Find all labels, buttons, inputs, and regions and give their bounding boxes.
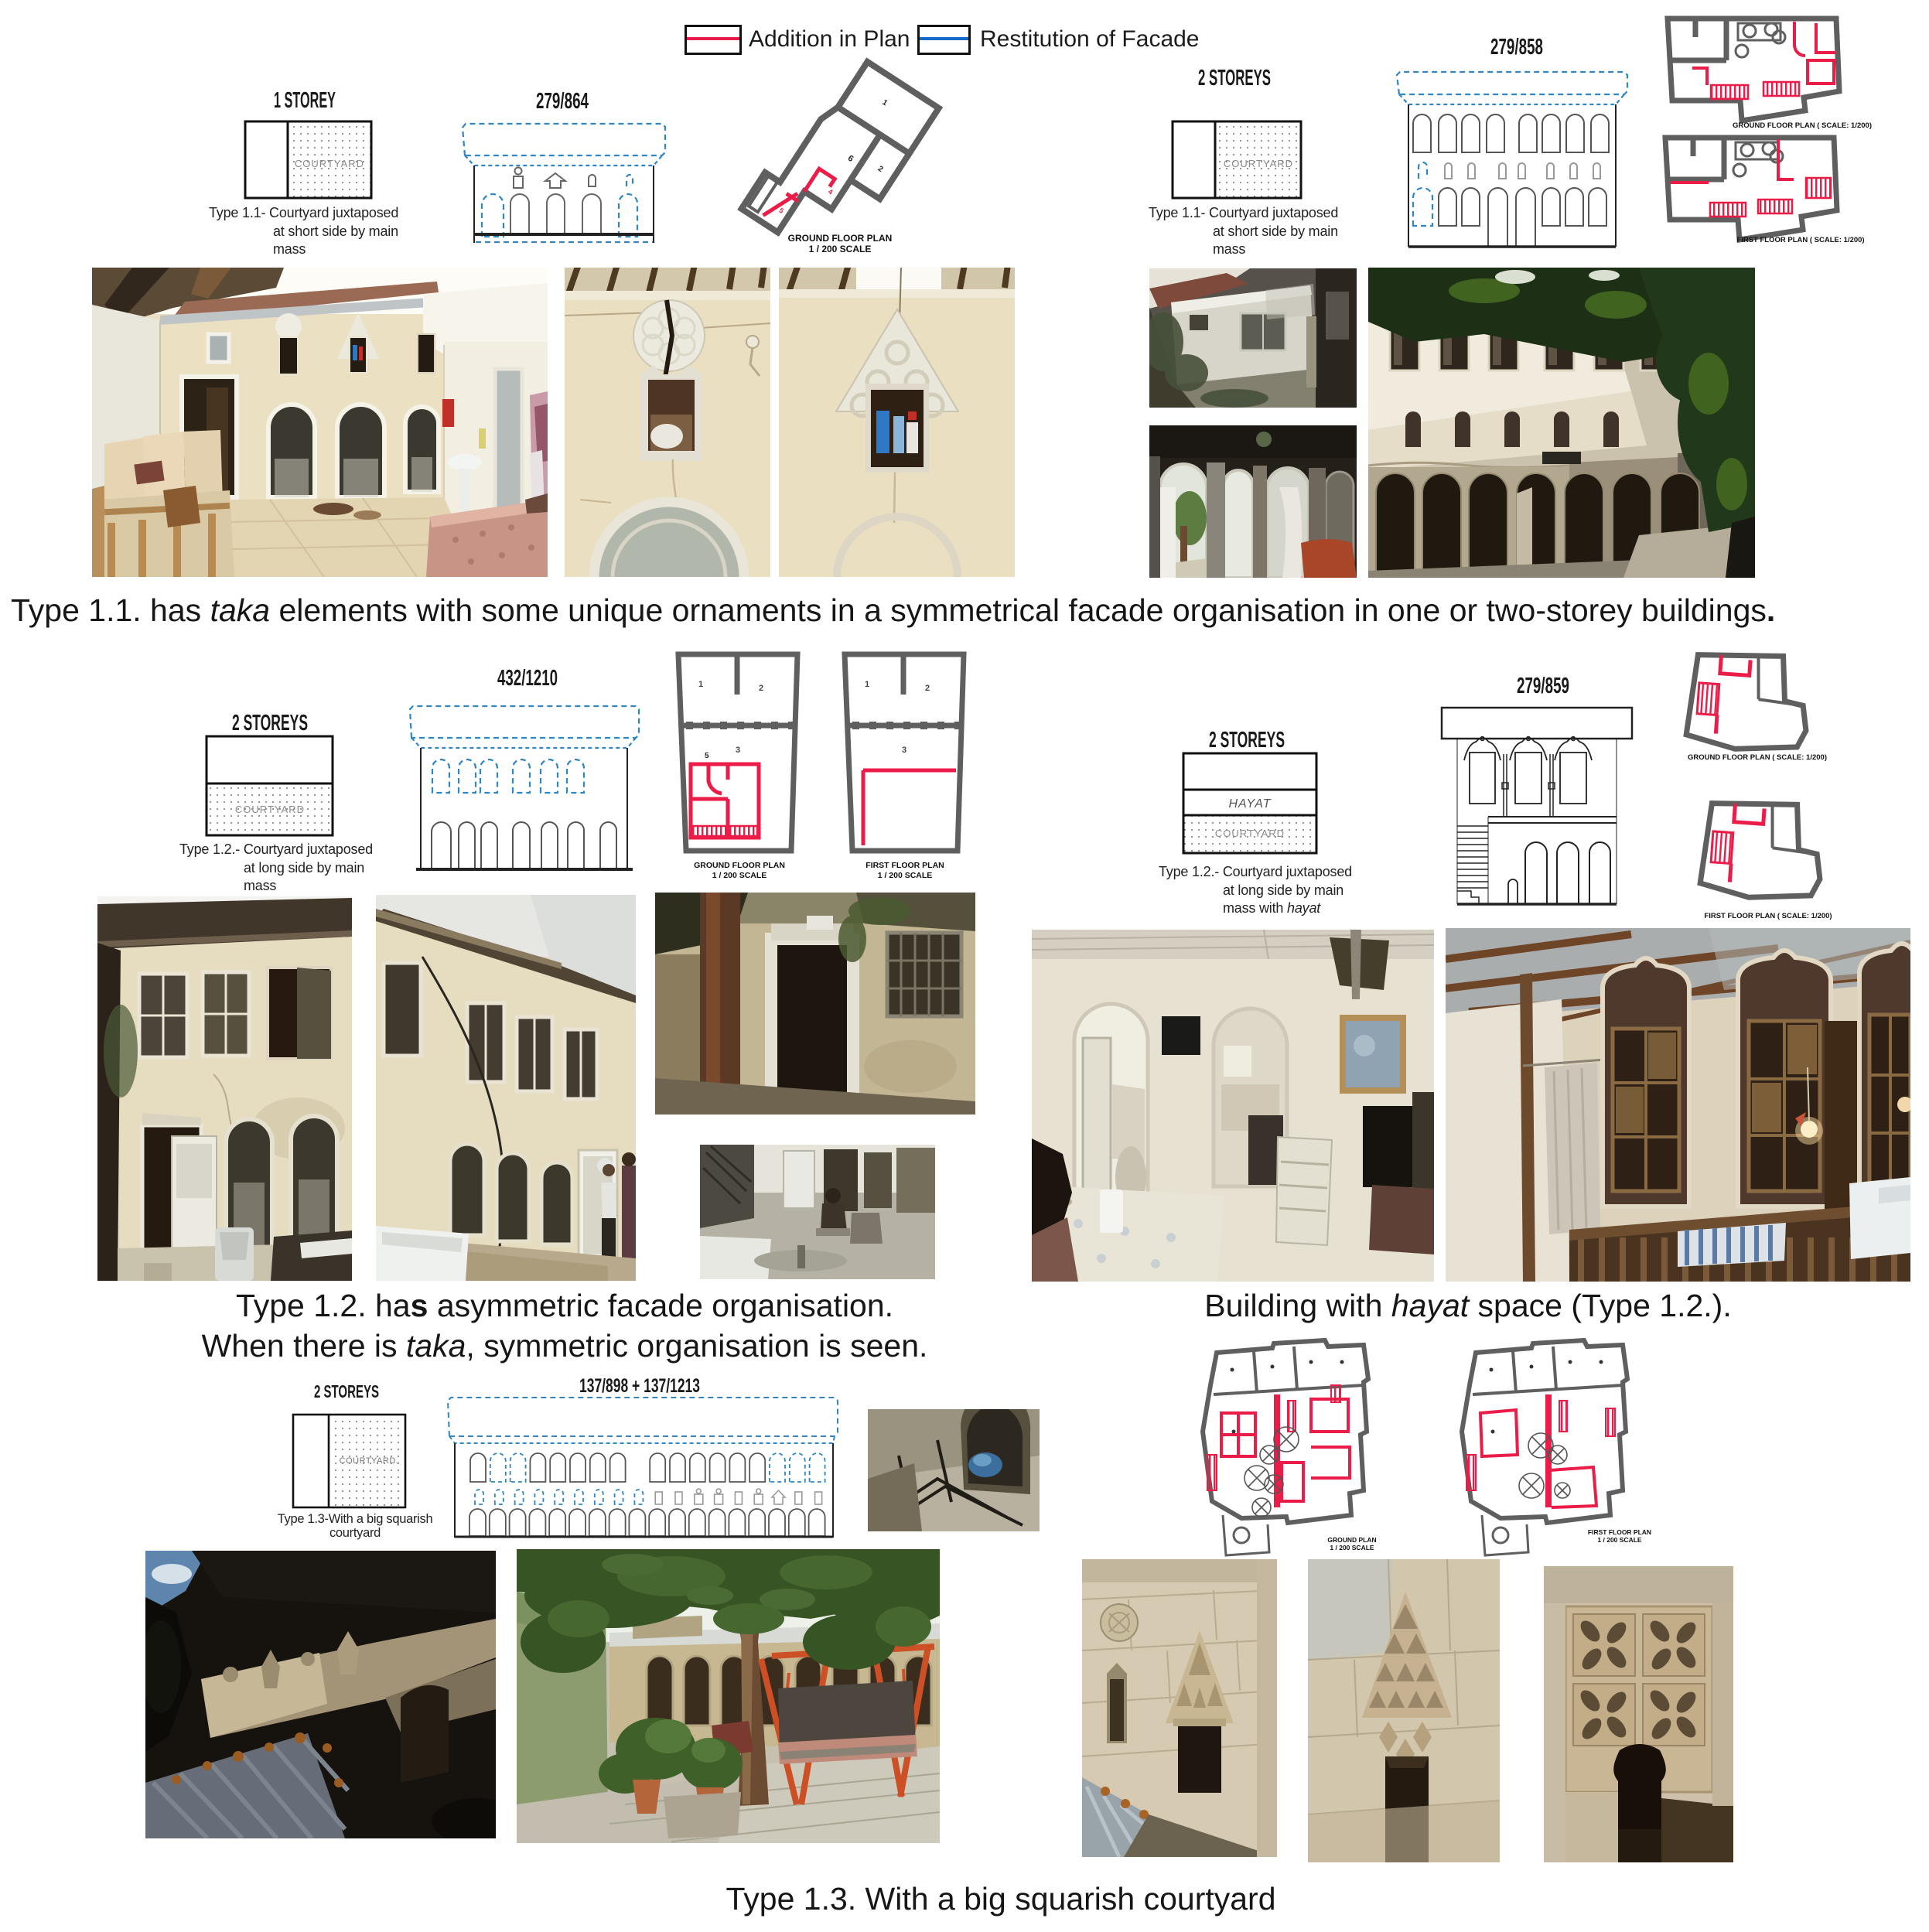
svg-text:4: 4 — [827, 187, 835, 196]
svg-text:1 / 200 SCALE: 1 / 200 SCALE — [1330, 1544, 1374, 1551]
svg-text:2: 2 — [925, 684, 930, 693]
svg-text:COURTYARD: COURTYARD — [1215, 828, 1285, 839]
svg-text:1: 1 — [698, 680, 703, 689]
svg-text:FIRST FLOOR PLAN ( SCALE: 1/20: FIRST FLOOR PLAN ( SCALE: 1/200) — [1704, 912, 1832, 920]
svg-text:2 STOREYS: 2 STOREYS — [314, 1381, 379, 1401]
svg-text:COURTYARD: COURTYARD — [235, 804, 305, 815]
svg-text:HAYAT: HAYAT — [1228, 797, 1271, 811]
svg-text:2 STOREYS: 2 STOREYS — [1209, 728, 1285, 753]
svg-text:GROUND FLOOR PLAN: GROUND FLOOR PLAN — [694, 861, 785, 870]
svg-text:2: 2 — [876, 165, 885, 174]
svg-text:1: 1 — [880, 98, 889, 108]
svg-text:1: 1 — [865, 680, 869, 689]
svg-text:2 STOREYS: 2 STOREYS — [232, 711, 308, 736]
svg-text:FIRST FLOOR PLAN ( SCALE: 1/20: FIRST FLOOR PLAN ( SCALE: 1/200) — [1736, 236, 1864, 244]
svg-text:1 STOREY: 1 STOREY — [274, 88, 336, 113]
svg-text:279/859: 279/859 — [1517, 674, 1569, 698]
svg-text:137/898 + 137/1213: 137/898 + 137/1213 — [579, 1375, 700, 1397]
svg-text:GROUND FLOOR PLAN: GROUND FLOOR PLAN — [788, 233, 893, 244]
svg-text:GROUND FLOOR PLAN ( SCALE: 1/2: GROUND FLOOR PLAN ( SCALE: 1/200) — [1733, 121, 1872, 130]
svg-text:COURTYARD: COURTYARD — [295, 158, 364, 169]
svg-text:1 / 200 SCALE: 1 / 200 SCALE — [809, 244, 872, 254]
svg-text:5: 5 — [705, 752, 709, 760]
svg-text:3: 3 — [736, 746, 740, 755]
svg-text:2: 2 — [759, 684, 763, 693]
svg-text:GROUND PLAN: GROUND PLAN — [1327, 1536, 1376, 1544]
svg-text:1 / 200 SCALE: 1 / 200 SCALE — [1597, 1536, 1641, 1544]
svg-text:1 / 200 SCALE: 1 / 200 SCALE — [878, 871, 933, 880]
svg-text:6: 6 — [846, 154, 855, 164]
svg-text:279/858: 279/858 — [1490, 35, 1543, 60]
svg-text:432/1210: 432/1210 — [497, 666, 558, 691]
svg-text:2 STOREYS: 2 STOREYS — [1198, 66, 1271, 90]
svg-text:FIRST FLOOR PLAN: FIRST FLOOR PLAN — [1588, 1528, 1651, 1536]
svg-text:279/864: 279/864 — [536, 89, 589, 114]
svg-text:1 / 200 SCALE: 1 / 200 SCALE — [712, 871, 767, 880]
svg-text:3: 3 — [902, 746, 906, 755]
svg-text:COURTYARD.: COURTYARD. — [340, 1456, 399, 1466]
svg-text:GROUND FLOOR PLAN ( SCALE: 1/2: GROUND FLOOR PLAN ( SCALE: 1/200) — [1688, 753, 1827, 762]
svg-text:COURTYARD: COURTYARD — [1224, 158, 1293, 169]
svg-text:FIRST FLOOR PLAN: FIRST FLOOR PLAN — [865, 861, 944, 870]
